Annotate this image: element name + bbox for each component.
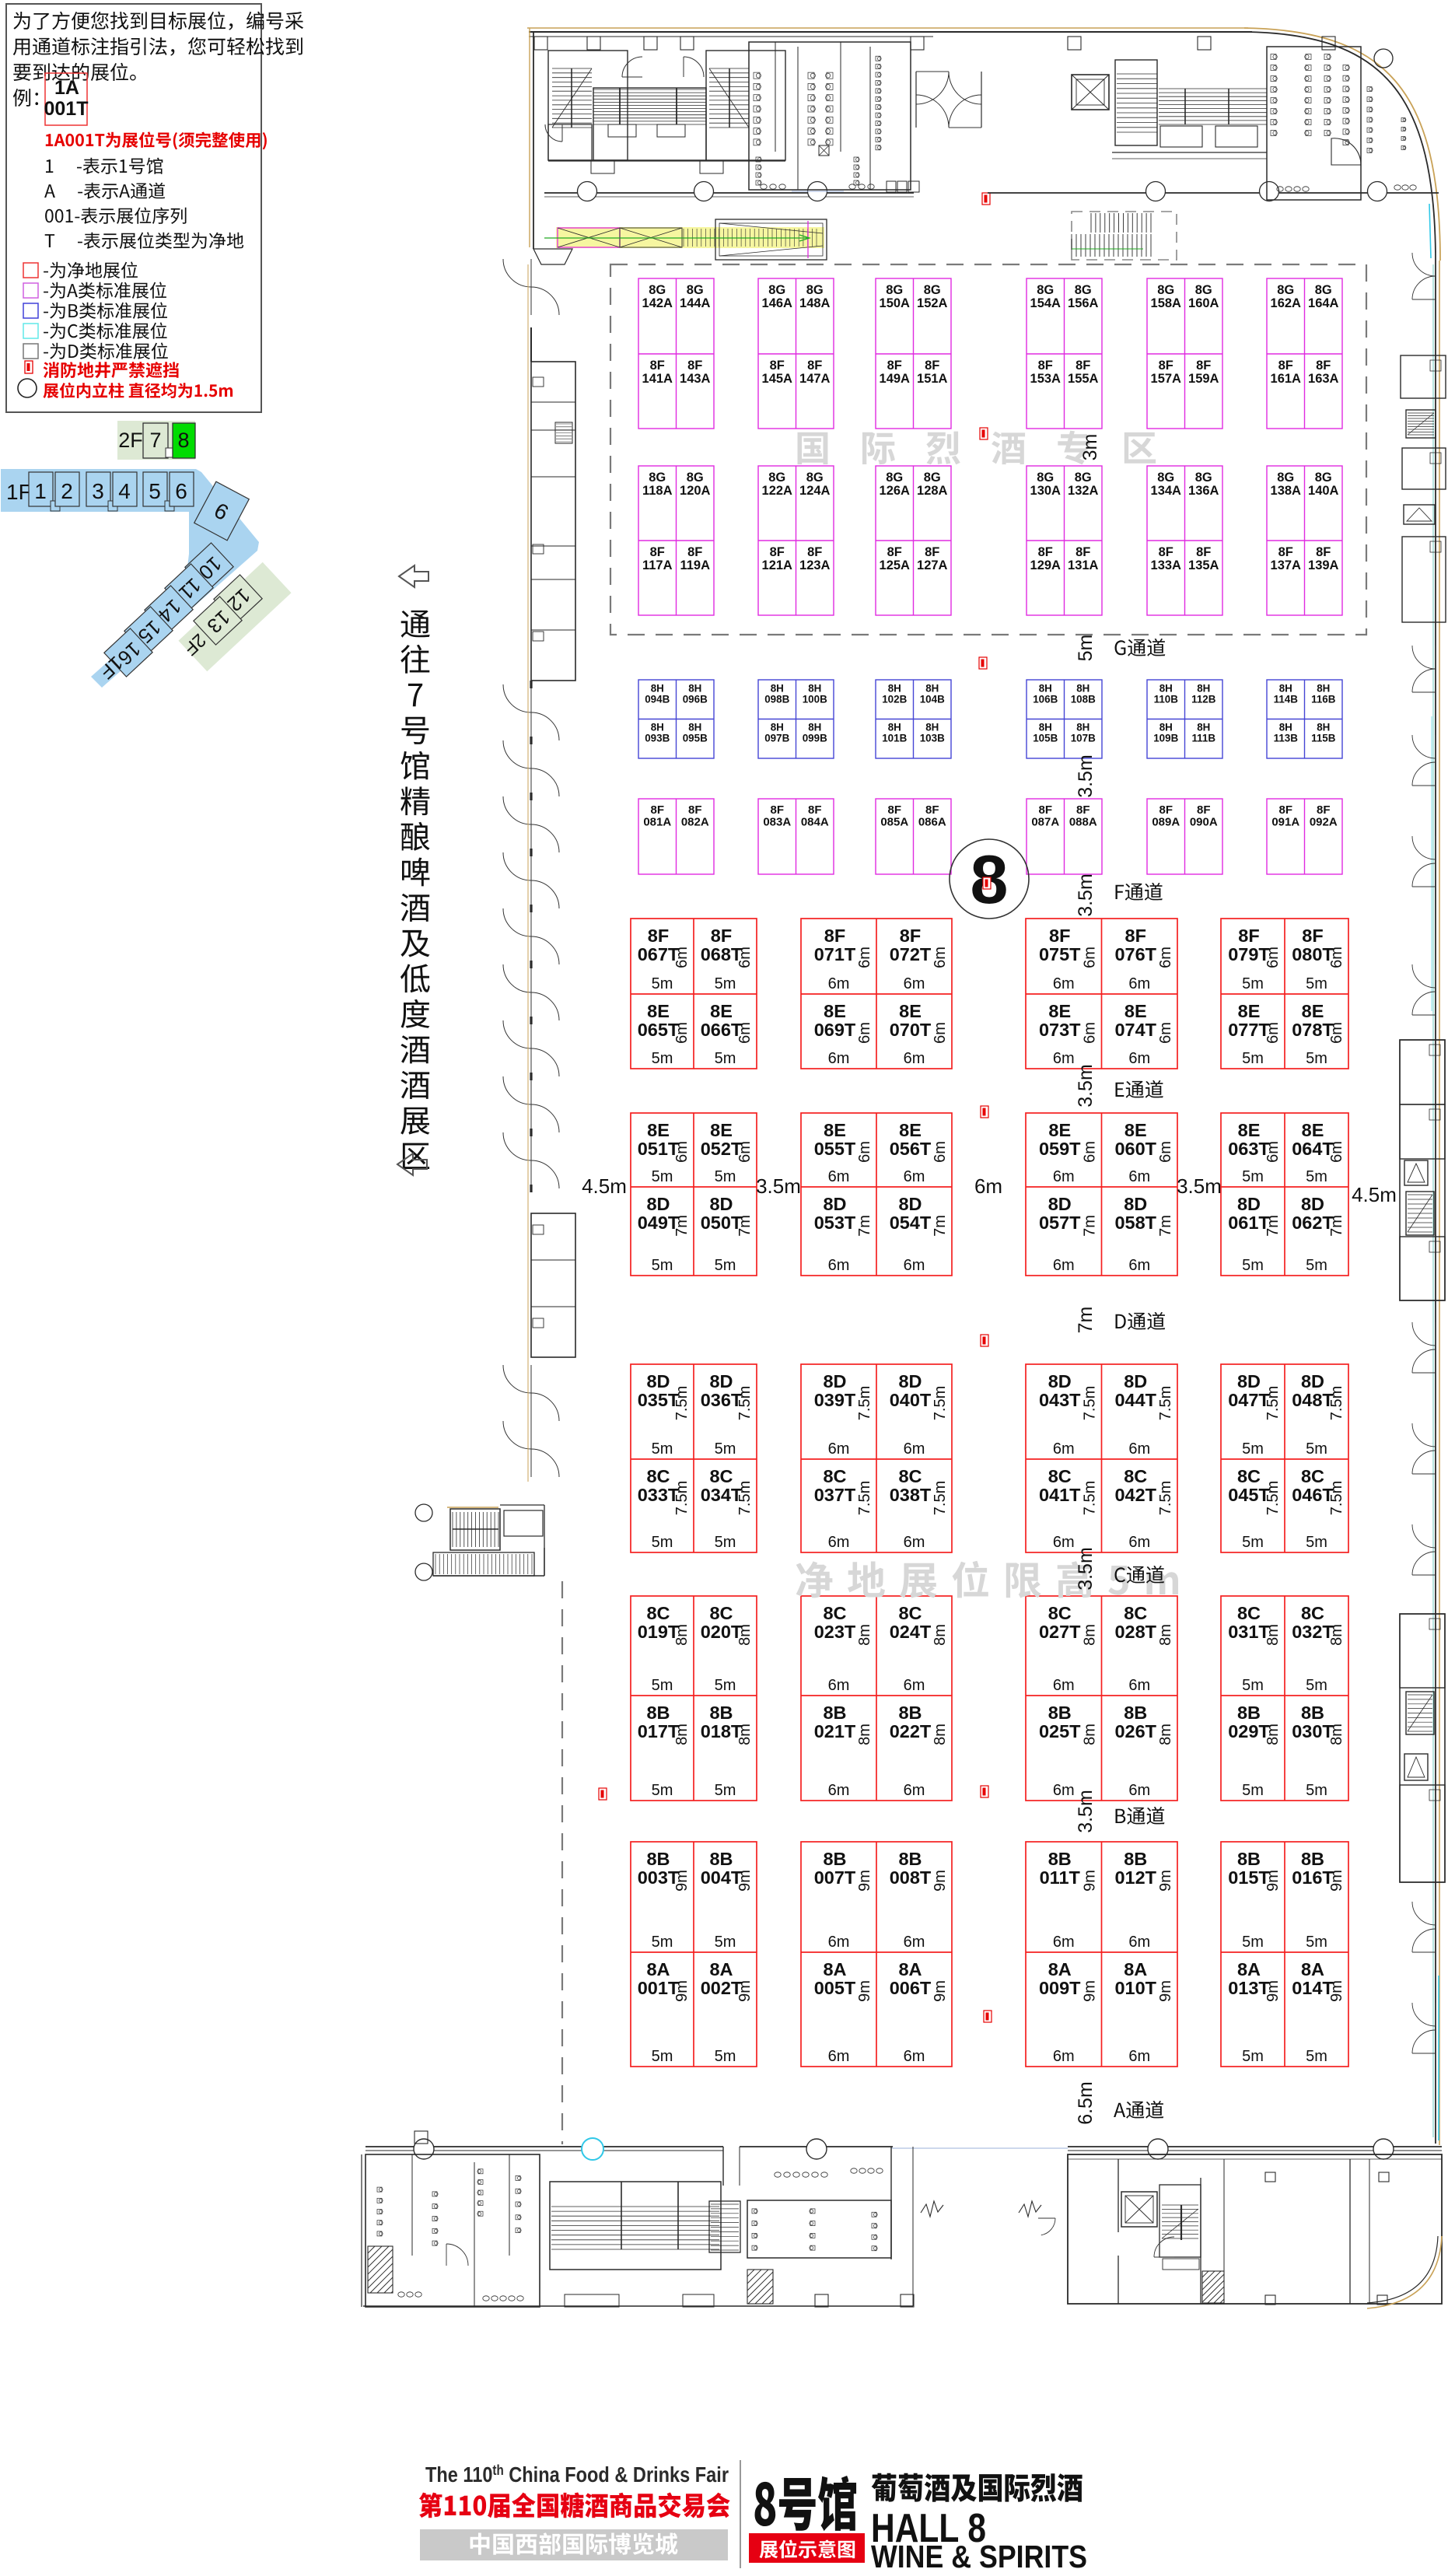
svg-text:8D: 8D [709,1371,733,1391]
svg-text:103B: 103B [920,733,945,744]
svg-text:058T: 058T [1114,1213,1156,1233]
svg-text:6m: 6m [904,1440,925,1458]
svg-text:5m: 5m [652,1440,673,1458]
svg-text:8C: 8C [898,1603,922,1623]
svg-text:086A: 086A [918,815,946,828]
svg-text:8H: 8H [1076,683,1089,695]
svg-text:008T: 008T [890,1867,932,1888]
svg-text:8G: 8G [924,283,941,297]
svg-text:8H: 8H [688,722,701,733]
svg-text:8G: 8G [1075,471,1092,485]
svg-text:093B: 093B [645,733,670,744]
svg-text:072T: 072T [890,944,932,964]
svg-text:8C: 8C [1048,1466,1072,1486]
svg-text:5m: 5m [1306,1257,1327,1274]
svg-text:124A: 124A [799,484,831,498]
svg-text:8C: 8C [1124,1603,1147,1623]
svg-text:8D: 8D [1048,1371,1072,1391]
svg-text:6m: 6m [1053,1050,1075,1067]
svg-text:8G: 8G [1277,471,1294,485]
svg-text:6m: 6m [673,947,691,968]
svg-text:151A: 151A [917,372,948,386]
svg-text:8A: 8A [1301,1959,1324,1979]
svg-text:2: 2 [61,479,73,503]
svg-text:060T: 060T [1114,1139,1156,1159]
svg-text:6m: 6m [828,1257,850,1274]
svg-text:8H: 8H [1279,683,1292,695]
svg-text:8H: 8H [888,722,901,733]
svg-text:8m: 8m [673,1624,691,1646]
svg-text:8E: 8E [1238,1120,1261,1140]
svg-text:8H: 8H [1076,722,1089,733]
svg-text:009T: 009T [1039,1978,1081,1998]
svg-text:8H: 8H [1197,683,1210,695]
svg-text:9m: 9m [673,1980,691,2002]
svg-text:5m: 5m [1306,1782,1327,1799]
svg-text:8D: 8D [898,1194,922,1214]
svg-text:8G: 8G [1315,283,1332,297]
svg-text:6m: 6m [1328,1141,1345,1163]
svg-text:084A: 084A [801,815,829,828]
svg-text:8m: 8m [1082,1724,1099,1745]
svg-text:161A: 161A [1271,372,1302,386]
svg-text:8F: 8F [925,545,939,559]
svg-text:3m: 3m [1079,434,1101,461]
svg-text:5m: 5m [652,2048,673,2065]
svg-text:5m: 5m [1242,1257,1264,1274]
svg-text:5: 5 [149,479,161,503]
svg-text:081A: 081A [643,815,671,828]
svg-text:5m: 5m [715,1050,736,1067]
svg-text:9m: 9m [1328,1980,1345,2002]
svg-text:022T: 022T [890,1721,932,1741]
svg-text:6m: 6m [736,1022,754,1044]
svg-text:8G: 8G [768,471,785,485]
svg-text:109B: 109B [1153,733,1178,744]
svg-text:6m: 6m [1053,1782,1075,1799]
svg-text:8F: 8F [887,545,902,559]
svg-text:106B: 106B [1033,694,1058,705]
svg-text:154A: 154A [1030,296,1062,310]
svg-text:8F: 8F [1125,926,1146,946]
svg-text:8B: 8B [1124,1849,1147,1869]
svg-text:8E: 8E [1238,1001,1261,1021]
svg-text:037T: 037T [814,1485,856,1505]
svg-text:091A: 091A [1271,815,1299,828]
svg-text:8F: 8F [1038,545,1053,559]
svg-text:125A: 125A [880,558,911,572]
svg-text:144A: 144A [680,296,711,310]
svg-text:8D: 8D [1301,1194,1324,1214]
svg-text:8G: 8G [1195,283,1212,297]
svg-text:127A: 127A [917,558,948,572]
svg-text:8F: 8F [1159,359,1173,373]
svg-text:028T: 028T [1114,1622,1156,1642]
svg-text:3: 3 [92,479,104,503]
svg-text:8F: 8F [1317,803,1331,817]
svg-text:5m: 5m [652,1782,673,1799]
svg-text:8F: 8F [807,545,822,559]
svg-text:8H: 8H [651,722,664,733]
svg-text:7m: 7m [856,1215,873,1237]
svg-text:8F: 8F [887,359,902,373]
svg-text:8D: 8D [709,1194,733,1214]
svg-text:6m: 6m [1157,947,1174,968]
svg-text:8B: 8B [709,1703,733,1723]
svg-text:111B: 111B [1191,733,1215,744]
svg-text:095B: 095B [683,733,708,744]
svg-text:8H: 8H [888,683,901,695]
svg-text:6m: 6m [1128,1257,1150,1274]
svg-text:9m: 9m [1082,1980,1099,2002]
svg-text:7m: 7m [1082,1215,1099,1237]
svg-text:132A: 132A [1068,484,1099,498]
svg-text:024T: 024T [890,1622,932,1642]
svg-text:8E: 8E [824,1001,846,1021]
svg-text:8m: 8m [736,1624,754,1646]
svg-text:155A: 155A [1068,372,1099,386]
svg-text:6m: 6m [828,1534,850,1551]
svg-text:8F: 8F [1196,359,1211,373]
svg-text:8E: 8E [710,1001,733,1021]
svg-text:8E: 8E [899,1001,922,1021]
svg-text:7m: 7m [1157,1215,1174,1237]
svg-text:8B: 8B [1048,1703,1072,1723]
svg-text:8H: 8H [1317,683,1330,695]
svg-text:8F: 8F [925,359,939,373]
svg-text:131A: 131A [1068,558,1099,572]
svg-text:6m: 6m [932,1141,949,1163]
svg-text:8F: 8F [887,803,901,817]
svg-text:8G: 8G [886,471,903,485]
svg-text:163A: 163A [1308,372,1339,386]
svg-text:5m: 5m [715,2048,736,2065]
svg-text:7.5m: 7.5m [932,1386,949,1420]
svg-text:8B: 8B [898,1849,922,1869]
svg-text:136A: 136A [1188,484,1219,498]
svg-text:6m: 6m [1082,947,1099,968]
svg-text:146A: 146A [762,296,793,310]
svg-text:6m: 6m [1128,975,1150,992]
svg-text:8m: 8m [856,1624,873,1646]
svg-text:8H: 8H [808,683,821,695]
svg-text:126A: 126A [880,484,911,498]
svg-text:026T: 026T [1114,1721,1156,1741]
svg-text:8E: 8E [1048,1120,1071,1140]
svg-text:7m: 7m [673,1215,691,1237]
svg-text:6m: 6m [1053,1934,1075,1951]
svg-text:8B: 8B [823,1849,846,1869]
svg-text:8F: 8F [824,926,845,946]
svg-text:143A: 143A [680,372,711,386]
svg-text:148A: 148A [799,296,831,310]
svg-text:069T: 069T [814,1020,856,1040]
svg-text:6m: 6m [904,1677,925,1694]
svg-text:8C: 8C [646,1603,670,1623]
svg-text:021T: 021T [814,1721,856,1741]
svg-text:6m: 6m [736,947,754,968]
svg-text:147A: 147A [799,372,831,386]
svg-text:153A: 153A [1030,372,1062,386]
svg-text:7.5m: 7.5m [1082,1481,1099,1515]
svg-text:027T: 027T [1039,1622,1081,1642]
svg-text:8F: 8F [711,926,732,946]
svg-text:8H: 8H [1317,722,1330,733]
svg-text:9m: 9m [856,1870,873,1892]
svg-text:9m: 9m [673,1870,691,1892]
svg-text:038T: 038T [890,1485,932,1505]
svg-text:8F: 8F [650,545,665,559]
svg-text:9m: 9m [1157,1870,1174,1892]
svg-text:8D: 8D [1237,1194,1261,1214]
svg-text:8E: 8E [1302,1001,1324,1021]
svg-text:7.5m: 7.5m [1264,1481,1282,1515]
svg-text:7.5m: 7.5m [1157,1386,1174,1420]
svg-text:8F: 8F [1038,803,1052,817]
svg-text:8F: 8F [1159,545,1173,559]
svg-text:118A: 118A [642,484,673,498]
svg-text:The 110th China Food & Drinks: The 110th China Food & Drinks Fair [425,2462,729,2487]
svg-text:5m: 5m [1242,975,1264,992]
svg-text:9m: 9m [736,1980,754,2002]
svg-text:108B: 108B [1071,694,1096,705]
svg-text:5m: 5m [1242,1440,1264,1458]
svg-text:023T: 023T [814,1622,856,1642]
svg-text:8E: 8E [899,1120,922,1140]
svg-text:6m: 6m [1264,947,1282,968]
svg-text:1F: 1F [6,480,32,504]
svg-text:8G: 8G [1157,471,1174,485]
svg-text:5m: 5m [1306,1934,1327,1951]
svg-text:6m: 6m [828,1677,850,1694]
svg-text:070T: 070T [890,1020,932,1040]
svg-text:8A: 8A [1048,1959,1072,1979]
svg-text:8A: 8A [898,1959,922,1979]
svg-text:7.5m: 7.5m [673,1481,691,1515]
svg-text:5m: 5m [652,1677,673,1694]
svg-text:056T: 056T [890,1139,932,1159]
svg-text:6m: 6m [1128,1677,1150,1694]
svg-text:076T: 076T [1114,944,1156,964]
svg-text:152A: 152A [917,296,948,310]
svg-text:8B: 8B [1301,1849,1324,1869]
svg-text:105B: 105B [1033,733,1058,744]
svg-text:8H: 8H [688,683,701,695]
svg-text:150A: 150A [880,296,911,310]
svg-text:6m: 6m [1128,1050,1150,1067]
svg-text:6m: 6m [1128,1534,1150,1551]
svg-text:8C: 8C [646,1466,670,1486]
svg-text:121A: 121A [762,558,793,572]
svg-text:040T: 040T [890,1390,932,1410]
svg-text:041T: 041T [1039,1485,1081,1505]
svg-text:158A: 158A [1151,296,1182,310]
svg-text:6m: 6m [1328,1022,1345,1044]
svg-text:6m: 6m [974,1174,1002,1198]
svg-text:6m: 6m [828,1050,850,1067]
svg-text:8H: 8H [771,722,784,733]
svg-text:8G: 8G [886,283,903,297]
svg-text:3.5m: 3.5m [1075,1790,1096,1833]
svg-text:7.5m: 7.5m [932,1481,949,1515]
svg-text:8F: 8F [1238,926,1259,946]
svg-text:112B: 112B [1191,694,1216,705]
svg-text:4: 4 [118,479,131,503]
svg-text:8G: 8G [1037,471,1054,485]
svg-text:5m: 5m [715,1534,736,1551]
svg-text:8m: 8m [932,1624,949,1646]
svg-text:5m: 5m [1306,1677,1327,1694]
svg-text:8m: 8m [1264,1624,1282,1646]
svg-text:7.5m: 7.5m [1082,1386,1099,1420]
svg-text:8D: 8D [646,1194,670,1214]
svg-text:8m: 8m [1328,1624,1345,1646]
svg-text:5m: 5m [1242,1168,1264,1185]
svg-text:122A: 122A [762,484,793,498]
svg-text:8C: 8C [1301,1466,1324,1486]
svg-text:4.5m: 4.5m [1352,1183,1397,1206]
svg-text:6m: 6m [1157,1141,1174,1163]
svg-text:8G: 8G [687,471,704,485]
svg-text:7m: 7m [1075,1307,1096,1334]
svg-text:8F: 8F [900,926,921,946]
svg-text:3.5m: 3.5m [1075,1547,1096,1591]
svg-text:8F: 8F [1038,359,1053,373]
svg-text:164A: 164A [1308,296,1339,310]
svg-text:9m: 9m [1264,1980,1282,2002]
svg-text:116B: 116B [1311,694,1336,705]
svg-text:083A: 083A [763,815,791,828]
svg-text:3.5m: 3.5m [1075,754,1096,798]
svg-text:8C: 8C [1237,1466,1261,1486]
svg-text:8D: 8D [823,1194,846,1214]
svg-text:110B: 110B [1154,694,1179,705]
svg-text:5m: 5m [1242,1050,1264,1067]
svg-text:097B: 097B [764,733,789,744]
svg-text:8F: 8F [1278,803,1292,817]
svg-text:8E: 8E [710,1120,733,1140]
svg-text:8m: 8m [1157,1724,1174,1745]
svg-text:088A: 088A [1069,815,1097,828]
svg-text:8m: 8m [1157,1624,1174,1646]
svg-text:074T: 074T [1114,1020,1156,1040]
svg-text:8D: 8D [1048,1194,1072,1214]
svg-text:5m: 5m [1306,1534,1327,1551]
svg-text:8F: 8F [1196,545,1211,559]
svg-text:3.5m: 3.5m [1075,873,1096,917]
svg-text:8C: 8C [1124,1466,1147,1486]
svg-text:8F: 8F [1076,803,1090,817]
svg-text:3.5m: 3.5m [1075,1064,1096,1108]
svg-text:8F: 8F [770,545,785,559]
svg-text:6m: 6m [1082,1022,1099,1044]
svg-text:8A: 8A [1124,1959,1147,1979]
svg-text:145A: 145A [762,372,793,386]
svg-text:6m: 6m [1082,1141,1099,1163]
svg-text:5m: 5m [1306,1168,1327,1185]
svg-text:007T: 007T [814,1867,856,1888]
svg-text:042T: 042T [1114,1485,1156,1505]
svg-text:8F: 8F [1278,545,1293,559]
svg-text:6m: 6m [904,1782,925,1799]
svg-text:8F: 8F [688,803,702,817]
svg-text:6: 6 [175,479,187,503]
svg-text:142A: 142A [642,296,673,310]
svg-text:8: 8 [177,429,189,452]
svg-text:5m: 5m [1306,1440,1327,1458]
svg-text:8G: 8G [1277,283,1294,297]
svg-text:8m: 8m [1082,1624,1099,1646]
svg-text:8G: 8G [1037,283,1054,297]
svg-text:8F: 8F [770,359,785,373]
svg-text:8H: 8H [1197,722,1210,733]
svg-text:6m: 6m [828,1440,850,1458]
svg-text:8D: 8D [1124,1371,1147,1391]
svg-text:8A: 8A [823,1959,846,1979]
svg-text:8m: 8m [856,1724,873,1745]
svg-text:133A: 133A [1151,558,1182,572]
svg-text:7.5m: 7.5m [736,1481,754,1515]
svg-text:6m: 6m [1053,1257,1075,1274]
svg-text:5m: 5m [652,1168,673,1185]
svg-text:5m: 5m [1075,635,1096,662]
svg-text:039T: 039T [814,1390,856,1410]
svg-text:6m: 6m [904,1168,925,1185]
svg-text:8G: 8G [1195,471,1212,485]
svg-text:8B: 8B [646,1703,670,1723]
svg-text:092A: 092A [1310,815,1338,828]
svg-text:001T: 001T [44,98,89,120]
svg-text:8E: 8E [1302,1120,1324,1140]
svg-text:8C: 8C [898,1466,922,1486]
svg-text:8D: 8D [1237,1371,1261,1391]
svg-text:4.5m: 4.5m [582,1174,627,1198]
svg-text:8F: 8F [1076,545,1090,559]
svg-text:6m: 6m [736,1141,754,1163]
svg-text:5m: 5m [1242,1782,1264,1799]
svg-text:8B: 8B [1048,1849,1072,1869]
svg-text:8G: 8G [768,283,785,297]
svg-text:8H: 8H [1279,722,1292,733]
svg-text:8m: 8m [1264,1724,1282,1745]
svg-text:8B: 8B [1237,1703,1261,1723]
svg-text:6m: 6m [904,1257,925,1274]
svg-text:7.5m: 7.5m [1328,1481,1345,1515]
svg-text:5m: 5m [715,1168,736,1185]
svg-text:082A: 082A [681,815,709,828]
svg-text:113B: 113B [1274,733,1299,744]
svg-text:8H: 8H [925,722,939,733]
svg-text:157A: 157A [1151,372,1182,386]
svg-text:6m: 6m [1264,1022,1282,1044]
svg-text:8H: 8H [771,683,784,695]
svg-text:8F: 8F [925,803,939,817]
svg-text:8D: 8D [1301,1371,1324,1391]
svg-text:8F: 8F [1076,359,1090,373]
svg-text:5m: 5m [715,1677,736,1694]
svg-text:8F: 8F [650,803,664,817]
svg-text:9m: 9m [1264,1870,1282,1892]
svg-text:8C: 8C [1301,1603,1324,1623]
svg-text:8B: 8B [823,1703,846,1723]
svg-text:6m: 6m [828,1782,850,1799]
svg-text:8A: 8A [646,1959,670,1979]
svg-text:5m: 5m [1242,2048,1264,2065]
svg-text:6m: 6m [856,1022,873,1044]
svg-text:137A: 137A [1271,558,1302,572]
svg-text:5m: 5m [652,1050,673,1067]
svg-text:8B: 8B [1301,1703,1324,1723]
